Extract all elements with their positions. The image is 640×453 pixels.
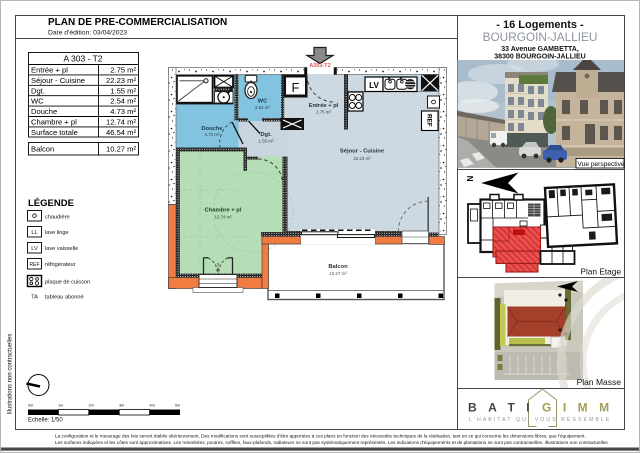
- svg-text:F: F: [292, 80, 300, 95]
- svg-text:2.75 m²: 2.75 m²: [316, 110, 331, 115]
- svg-text:1.55 m²: 1.55 m²: [110, 86, 136, 95]
- svg-text:Echelle: 1/50: Echelle: 1/50: [28, 418, 63, 424]
- svg-text:Entrée + pl: Entrée + pl: [309, 103, 339, 109]
- svg-text:A 303 - T2: A 303 - T2: [63, 54, 102, 64]
- svg-text:BATI: BATI: [468, 401, 541, 415]
- svg-text:Dgt.: Dgt.: [260, 132, 272, 138]
- svg-text:REF: REF: [30, 262, 40, 268]
- svg-text:2.75 m²: 2.75 m²: [110, 66, 136, 75]
- svg-text:GIMM: GIMM: [542, 401, 621, 415]
- svg-text:Illustrations non contractuell: Illustrations non contractuelles: [8, 334, 14, 415]
- svg-text:22.23 m²: 22.23 m²: [106, 76, 136, 85]
- svg-text:Chambre + pl: Chambre + pl: [205, 208, 242, 214]
- svg-text:N: N: [466, 176, 475, 182]
- svg-text:Séjour - Cuisine: Séjour - Cuisine: [340, 149, 385, 155]
- svg-text:Chambre + pl: Chambre + pl: [31, 118, 77, 127]
- svg-text:2.54 m²: 2.54 m²: [255, 105, 270, 110]
- svg-text:33 Avenue GAMBETTA,: 33 Avenue GAMBETTA,: [501, 46, 579, 53]
- svg-text:LV: LV: [31, 246, 38, 252]
- svg-text:2.54 m²: 2.54 m²: [110, 97, 136, 106]
- svg-text:4.73 m²: 4.73 m²: [205, 132, 220, 137]
- svg-text:Plan Etage: Plan Etage: [580, 267, 621, 277]
- svg-text:38300 BOURGOIN-JALLIEU: 38300 BOURGOIN-JALLIEU: [494, 54, 585, 61]
- svg-text:WC: WC: [258, 99, 268, 105]
- svg-text:0m: 0m: [28, 404, 33, 408]
- svg-text:Dgt.: Dgt.: [31, 86, 45, 95]
- svg-text:Séjour - Cuisine: Séjour - Cuisine: [31, 76, 85, 85]
- svg-text:4m: 4m: [150, 404, 155, 408]
- svg-text:plaque de cuisson: plaque de cuisson: [45, 280, 90, 286]
- svg-text:12.74 m²: 12.74 m²: [214, 215, 232, 220]
- svg-text:5m: 5m: [175, 404, 180, 408]
- svg-text:lave vaisselle: lave vaisselle: [45, 246, 78, 252]
- svg-text:Vue perspective: Vue perspective: [578, 161, 625, 168]
- svg-text:tableau abonné: tableau abonné: [45, 295, 84, 301]
- svg-text:lave linge: lave linge: [45, 230, 69, 236]
- svg-text:La configuration et le mesurag: La configuration et le mesurage des lots…: [55, 434, 586, 439]
- svg-text:10.27 m²: 10.27 m²: [106, 145, 136, 154]
- svg-text:10.27 m²: 10.27 m²: [329, 271, 347, 276]
- svg-text:REF: REF: [425, 114, 432, 127]
- svg-text:LV: LV: [369, 81, 379, 90]
- svg-text:Les surfaces indiquées et les: Les surfaces indiquées et les côtes sont…: [55, 440, 608, 445]
- svg-text:PLAN DE PRE-COMMERCIALISATION: PLAN DE PRE-COMMERCIALISATION: [48, 17, 227, 28]
- svg-text:WC: WC: [31, 97, 44, 106]
- svg-text:46.54 m²: 46.54 m²: [106, 128, 136, 137]
- svg-text:TA: TA: [31, 295, 38, 301]
- svg-text:1m: 1m: [58, 404, 63, 408]
- svg-text:Balcon: Balcon: [328, 264, 348, 270]
- svg-text:Douche: Douche: [31, 107, 57, 116]
- svg-text:Balcon: Balcon: [31, 145, 54, 154]
- svg-text:22.23 m²: 22.23 m²: [353, 156, 371, 161]
- svg-text:3m: 3m: [119, 404, 124, 408]
- svg-text:réfrigérateur: réfrigérateur: [45, 262, 76, 268]
- svg-text:2m: 2m: [89, 404, 94, 408]
- svg-text:Entrée + pl: Entrée + pl: [31, 66, 68, 75]
- svg-text:Date d'édition: 03/04/2023: Date d'édition: 03/04/2023: [48, 30, 127, 37]
- svg-text:LL: LL: [31, 230, 37, 236]
- svg-text:chaudière: chaudière: [45, 215, 70, 221]
- svg-text:Surface totale: Surface totale: [31, 128, 78, 137]
- svg-text:LÉGENDE: LÉGENDE: [28, 198, 74, 209]
- svg-text:4.73 m²: 4.73 m²: [110, 107, 136, 116]
- svg-text:1.55 m²: 1.55 m²: [259, 138, 274, 143]
- svg-text:Plan Masse: Plan Masse: [577, 377, 622, 387]
- svg-text:A303-T2: A303-T2: [309, 63, 330, 69]
- svg-text:BOURGOIN-JALLIEU: BOURGOIN-JALLIEU: [483, 30, 598, 44]
- svg-text:12.74 m²: 12.74 m²: [106, 118, 136, 127]
- svg-text:L'HABITAT QUI VOUS RESSEMBLE: L'HABITAT QUI VOUS RESSEMBLE: [469, 417, 611, 423]
